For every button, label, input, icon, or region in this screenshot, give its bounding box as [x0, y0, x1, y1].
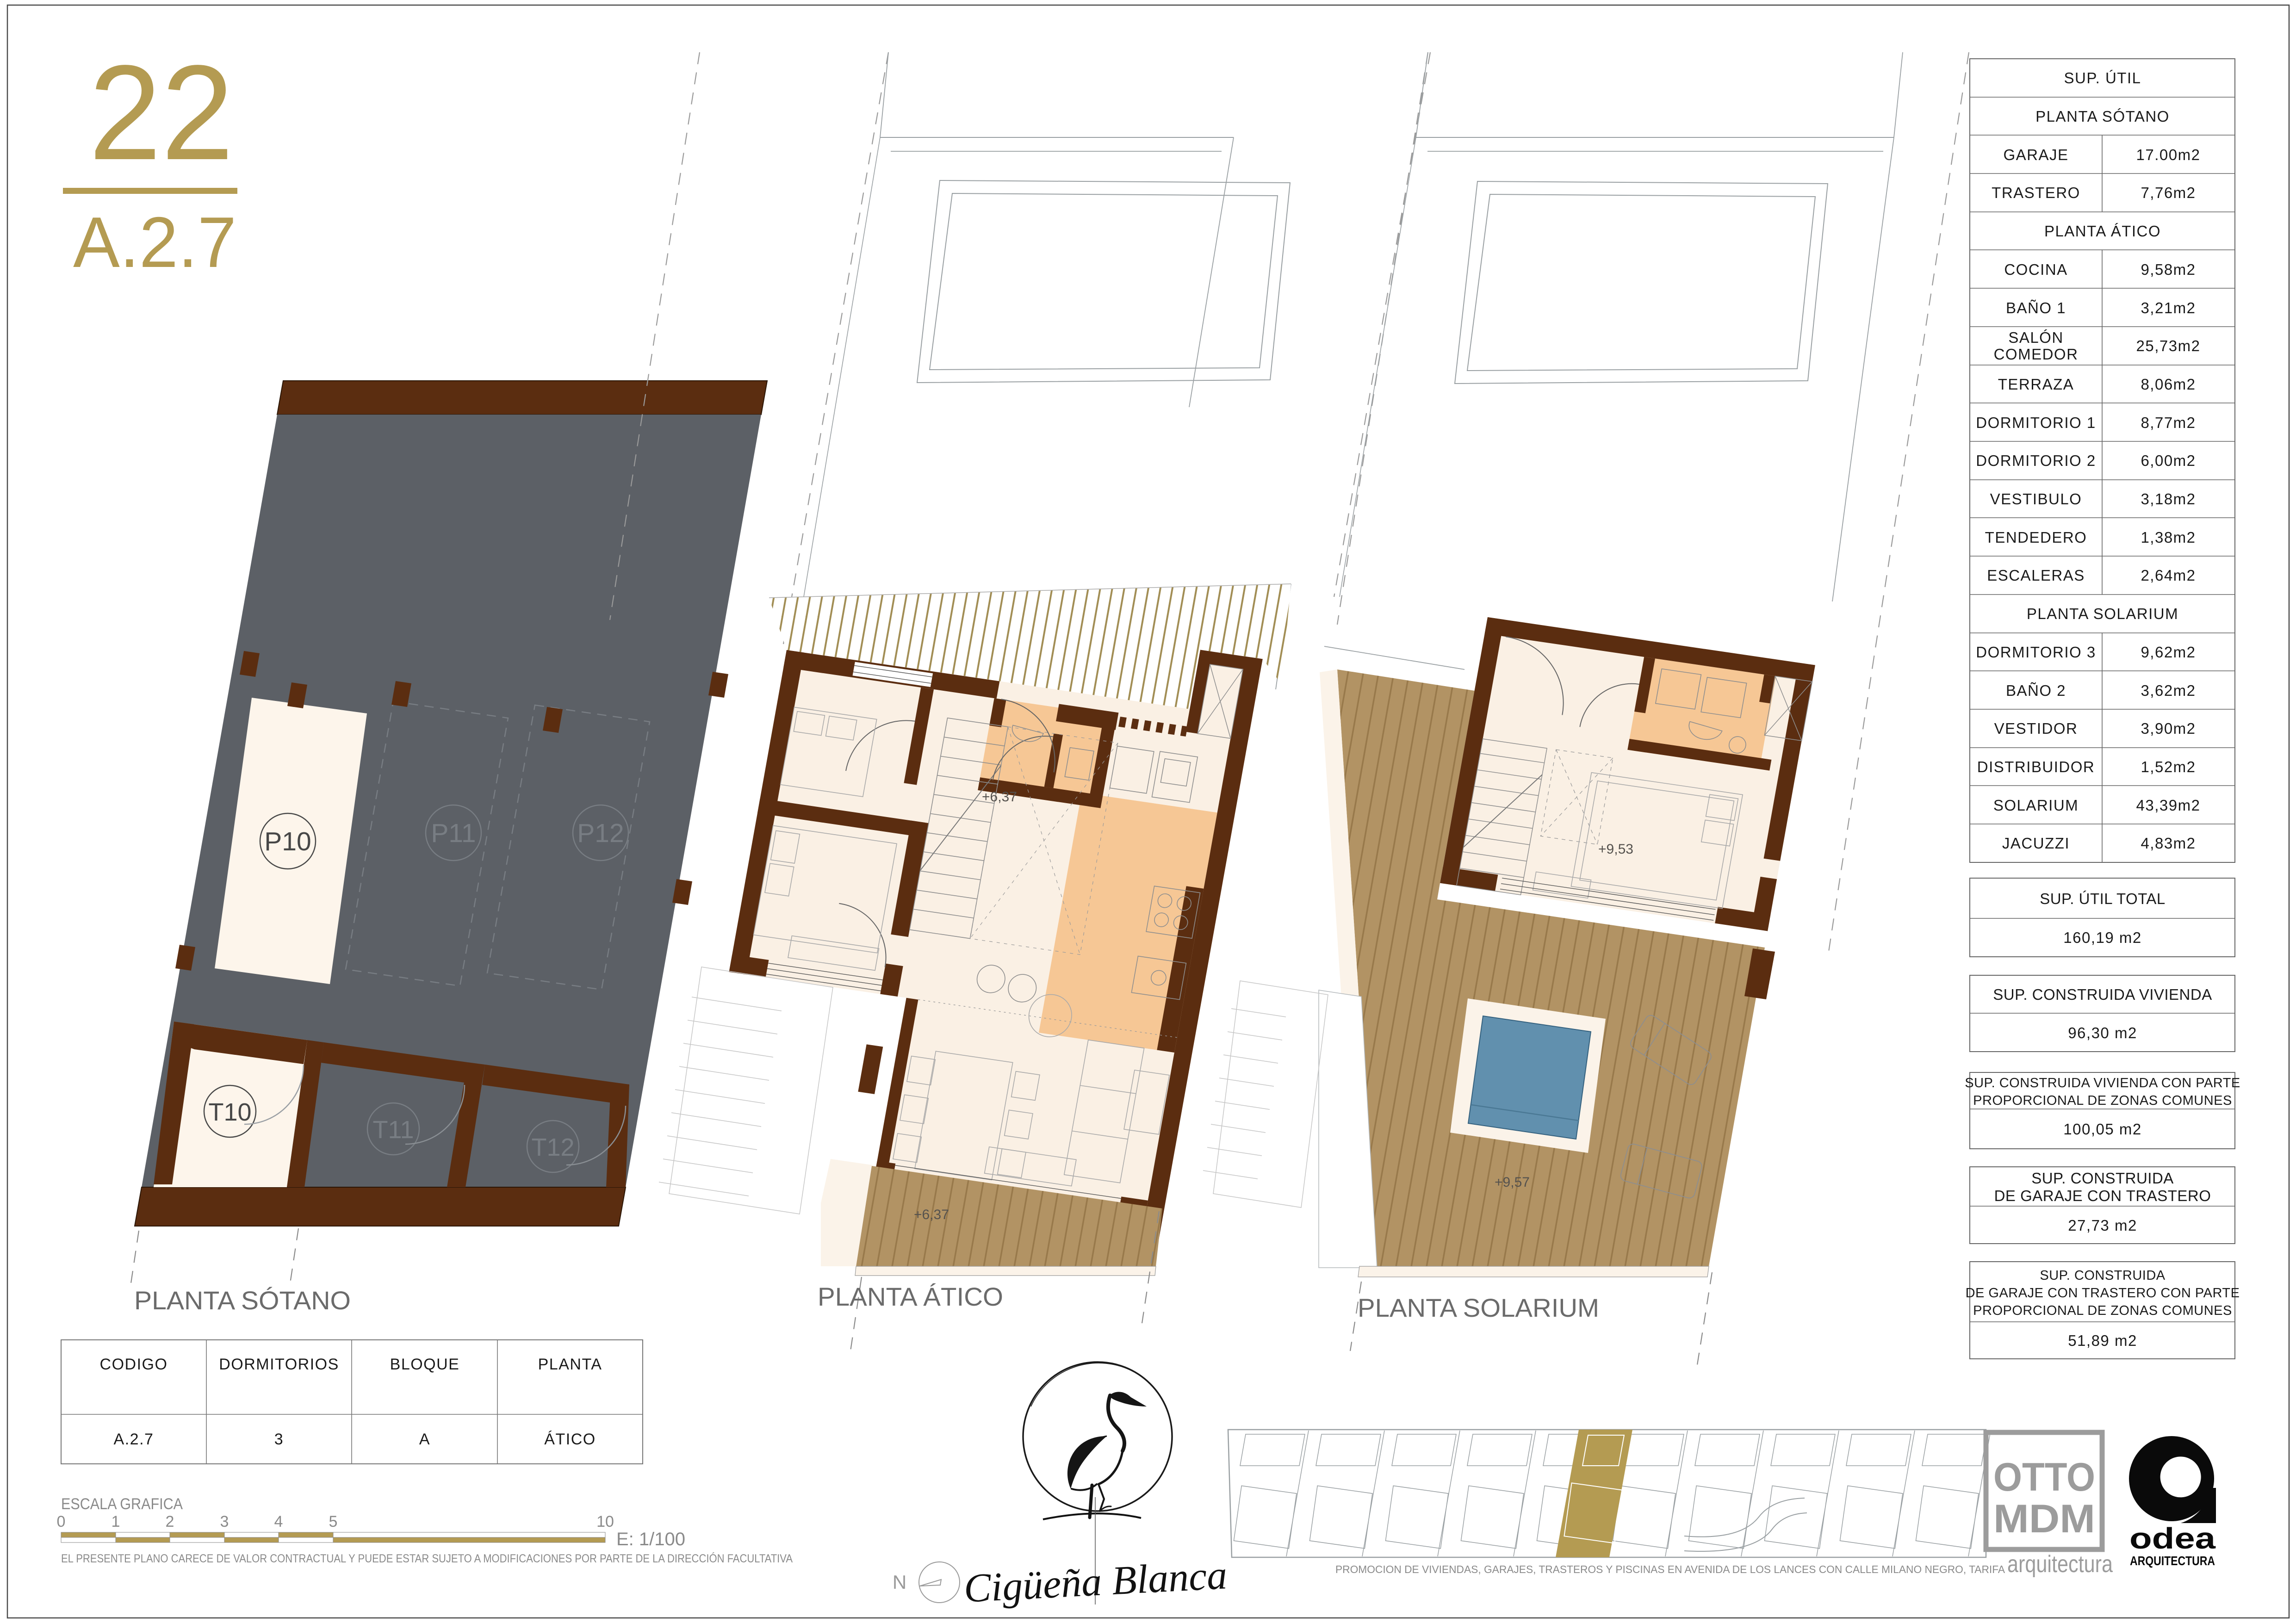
svg-text:MDM: MDM: [1993, 1497, 2095, 1541]
svg-text:DORMITORIO 2: DORMITORIO 2: [1976, 452, 2096, 469]
svg-text:43,39m2: 43,39m2: [2136, 797, 2201, 814]
svg-text:1: 1: [112, 1513, 120, 1530]
svg-text:SUP. CONSTRUIDA VIVIENDA CON P: SUP. CONSTRUIDA VIVIENDA CON PARTE: [1965, 1076, 2240, 1090]
svg-text:9,62m2: 9,62m2: [2141, 644, 2196, 661]
svg-text:ÁTICO: ÁTICO: [544, 1431, 596, 1448]
svg-text:8,77m2: 8,77m2: [2141, 414, 2196, 431]
svg-text:17.00m2: 17.00m2: [2136, 146, 2201, 163]
svg-text:27,73 m2: 27,73 m2: [2068, 1217, 2137, 1234]
svg-text:3,62m2: 3,62m2: [2141, 682, 2196, 699]
svg-text:N: N: [893, 1571, 906, 1593]
svg-text:160,19 m2: 160,19 m2: [2063, 929, 2141, 946]
svg-text:+6,37: +6,37: [914, 1207, 949, 1222]
svg-text:SOLARIUM: SOLARIUM: [1993, 797, 2079, 814]
svg-text:PLANTA SOLARIUM: PLANTA SOLARIUM: [1358, 1293, 1599, 1322]
svg-text:PLANTA SÓTANO: PLANTA SÓTANO: [2035, 108, 2170, 125]
svg-text:2: 2: [166, 1513, 174, 1530]
svg-text:Cigüeña Blanca: Cigüeña Blanca: [963, 1553, 1229, 1611]
svg-text:ESCALERAS: ESCALERAS: [1987, 567, 2085, 584]
svg-text:ESCALA GRAFICA: ESCALA GRAFICA: [61, 1495, 183, 1513]
svg-text:3,18m2: 3,18m2: [2141, 490, 2196, 508]
svg-text:T11: T11: [372, 1116, 414, 1144]
svg-text:5: 5: [329, 1513, 338, 1530]
svg-text:PLANTA ÁTICO: PLANTA ÁTICO: [2044, 223, 2161, 240]
svg-text:ARQUITECTURA: ARQUITECTURA: [2130, 1554, 2215, 1568]
svg-text:CODIGO: CODIGO: [100, 1356, 168, 1373]
svg-text:TRASTERO: TRASTERO: [1992, 184, 2080, 201]
svg-text:DISTRIBUIDOR: DISTRIBUIDOR: [1977, 758, 2095, 775]
svg-text:EL PRESENTE PLANO CARECE DE VA: EL PRESENTE PLANO CARECE DE VALOR CONTRA…: [61, 1552, 793, 1565]
svg-text:0: 0: [57, 1513, 66, 1530]
svg-text:2,64m2: 2,64m2: [2141, 567, 2196, 584]
svg-text:+6,37: +6,37: [982, 789, 1017, 805]
svg-text:6,00m2: 6,00m2: [2141, 452, 2196, 469]
svg-text:3,21m2: 3,21m2: [2141, 299, 2196, 316]
svg-text:8,06m2: 8,06m2: [2141, 376, 2196, 393]
svg-text:arquitectura: arquitectura: [2007, 1551, 2113, 1578]
svg-text:VESTIDOR: VESTIDOR: [1994, 720, 2078, 737]
svg-text:3: 3: [274, 1431, 284, 1448]
svg-text:GARAJE: GARAJE: [2003, 146, 2068, 163]
svg-text:PLANTA SÓTANO: PLANTA SÓTANO: [134, 1286, 351, 1315]
svg-text:A: A: [419, 1431, 430, 1448]
svg-text:SUP. CONSTRUIDA: SUP. CONSTRUIDA: [2031, 1170, 2174, 1187]
svg-text:3,90m2: 3,90m2: [2141, 720, 2196, 737]
svg-text:TENDEDERO: TENDEDERO: [1985, 529, 2087, 546]
svg-text:SUP. ÚTIL TOTAL: SUP. ÚTIL TOTAL: [2040, 890, 2166, 907]
svg-text:COCINA: COCINA: [2004, 261, 2067, 278]
svg-text:4,83m2: 4,83m2: [2141, 835, 2196, 852]
svg-text:JACUZZI: JACUZZI: [2002, 835, 2070, 852]
svg-text:DE GARAJE CON TRASTERO: DE GARAJE CON TRASTERO: [1994, 1187, 2211, 1204]
svg-text:9,58m2: 9,58m2: [2141, 261, 2196, 278]
svg-text:96,30 m2: 96,30 m2: [2068, 1024, 2137, 1041]
svg-text:4: 4: [274, 1513, 283, 1530]
svg-text:PROMOCION DE VIVIENDAS, GARAJE: PROMOCION DE VIVIENDAS, GARAJES, TRASTER…: [1335, 1563, 2005, 1575]
svg-text:T12: T12: [531, 1134, 574, 1161]
svg-text:PLANTA ÁTICO: PLANTA ÁTICO: [818, 1282, 1003, 1311]
svg-text:1,52m2: 1,52m2: [2141, 758, 2196, 775]
svg-text:PLANTA SOLARIUM: PLANTA SOLARIUM: [2027, 605, 2178, 622]
svg-text:odea: odea: [2129, 1522, 2216, 1555]
svg-text:7,76m2: 7,76m2: [2141, 184, 2196, 201]
svg-text:COMEDOR: COMEDOR: [1994, 346, 2079, 363]
svg-text:P12: P12: [577, 818, 624, 848]
svg-text:BAÑO 2: BAÑO 2: [2006, 682, 2066, 699]
svg-text:DORMITORIOS: DORMITORIOS: [219, 1356, 339, 1373]
svg-text:TERRAZA: TERRAZA: [1998, 376, 2074, 393]
svg-text:+9,53: +9,53: [1598, 842, 1633, 857]
svg-text:A.2.7: A.2.7: [73, 202, 236, 282]
svg-text:1,38m2: 1,38m2: [2141, 529, 2196, 546]
svg-text:DORMITORIO 1: DORMITORIO 1: [1976, 414, 2096, 431]
svg-text:BLOQUE: BLOQUE: [390, 1356, 460, 1373]
svg-text:DORMITORIO 3: DORMITORIO 3: [1976, 644, 2096, 661]
svg-text:PROPORCIONAL DE ZONAS COMUNES: PROPORCIONAL DE ZONAS COMUNES: [1973, 1093, 2232, 1108]
svg-text:100,05 m2: 100,05 m2: [2063, 1121, 2141, 1138]
svg-text:DE GARAJE CON TRASTERO CON PAR: DE GARAJE CON TRASTERO CON PARTE: [1966, 1286, 2240, 1301]
svg-text:P10: P10: [264, 827, 311, 856]
svg-text:T10: T10: [208, 1098, 251, 1126]
svg-text:22: 22: [89, 37, 234, 188]
svg-text:PROPORCIONAL DE ZONAS COMUNES: PROPORCIONAL DE ZONAS COMUNES: [1973, 1303, 2232, 1318]
svg-text:51,89 m2: 51,89 m2: [2068, 1332, 2137, 1349]
svg-text:25,73m2: 25,73m2: [2136, 337, 2201, 354]
svg-text:10: 10: [596, 1513, 614, 1530]
svg-text:SALÓN: SALÓN: [2008, 329, 2063, 346]
svg-text:SUP. ÚTIL: SUP. ÚTIL: [2064, 69, 2141, 87]
svg-text:+9,57: +9,57: [1495, 1175, 1530, 1190]
svg-text:E: 1/100: E: 1/100: [616, 1529, 685, 1549]
svg-text:P11: P11: [431, 818, 476, 848]
svg-text:OTTO: OTTO: [1993, 1455, 2095, 1499]
svg-text:SUP. CONSTRUIDA VIVIENDA: SUP. CONSTRUIDA VIVIENDA: [1993, 986, 2212, 1003]
svg-text:BAÑO 1: BAÑO 1: [2006, 299, 2066, 316]
svg-text:VESTIBULO: VESTIBULO: [1990, 490, 2082, 508]
svg-text:PLANTA: PLANTA: [538, 1356, 602, 1373]
svg-text:3: 3: [220, 1513, 229, 1530]
svg-text:SUP. CONSTRUIDA: SUP. CONSTRUIDA: [2040, 1268, 2165, 1283]
svg-text:A.2.7: A.2.7: [114, 1431, 154, 1448]
